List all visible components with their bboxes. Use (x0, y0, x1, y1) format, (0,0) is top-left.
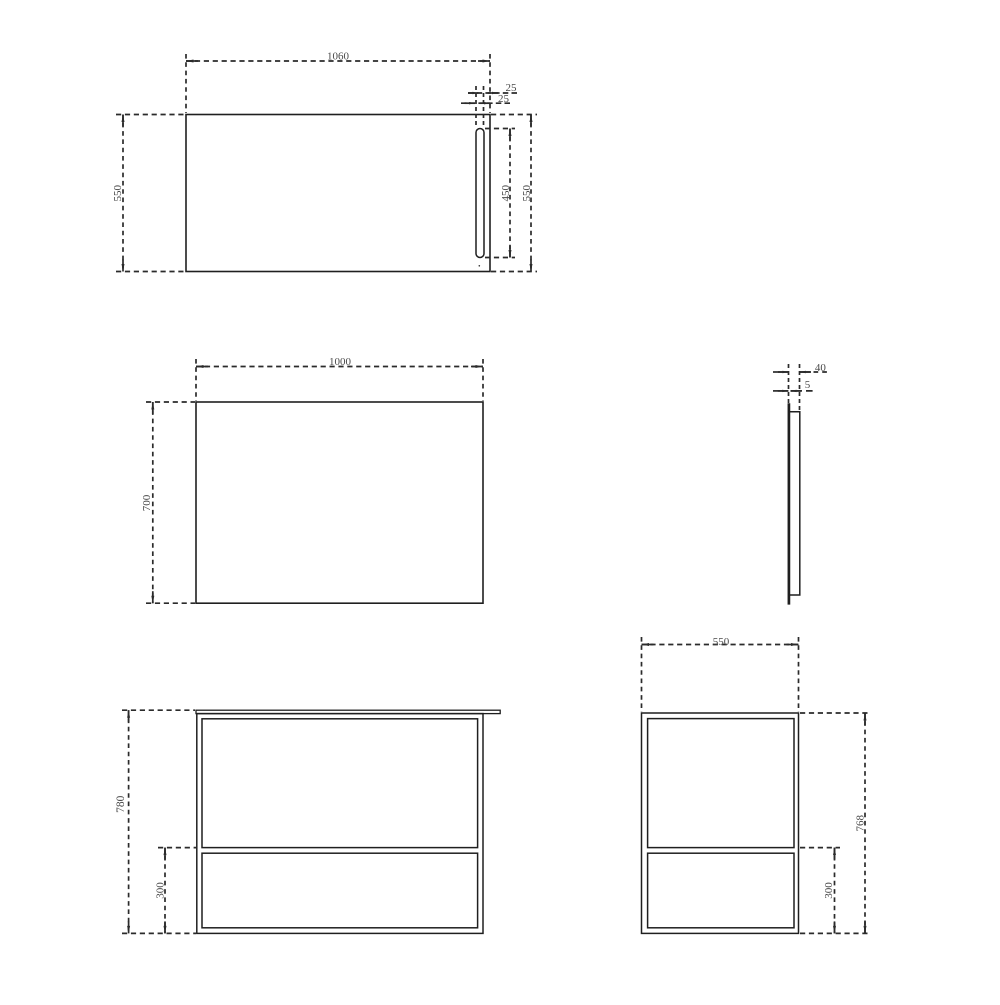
svg-text:780: 780 (115, 795, 127, 813)
svg-text:700: 700 (141, 494, 153, 511)
svg-text:300: 300 (155, 882, 167, 899)
svg-text:550: 550 (713, 636, 730, 648)
svg-text:5: 5 (805, 379, 811, 391)
svg-text:550: 550 (521, 184, 533, 201)
svg-text:450: 450 (500, 184, 512, 201)
svg-text:550: 550 (112, 184, 124, 201)
svg-text:1060: 1060 (327, 51, 350, 63)
svg-text:25: 25 (498, 93, 510, 105)
svg-text:300: 300 (823, 882, 835, 899)
svg-text:40: 40 (815, 362, 827, 374)
svg-text:768: 768 (855, 815, 867, 832)
svg-text:1000: 1000 (329, 356, 352, 368)
